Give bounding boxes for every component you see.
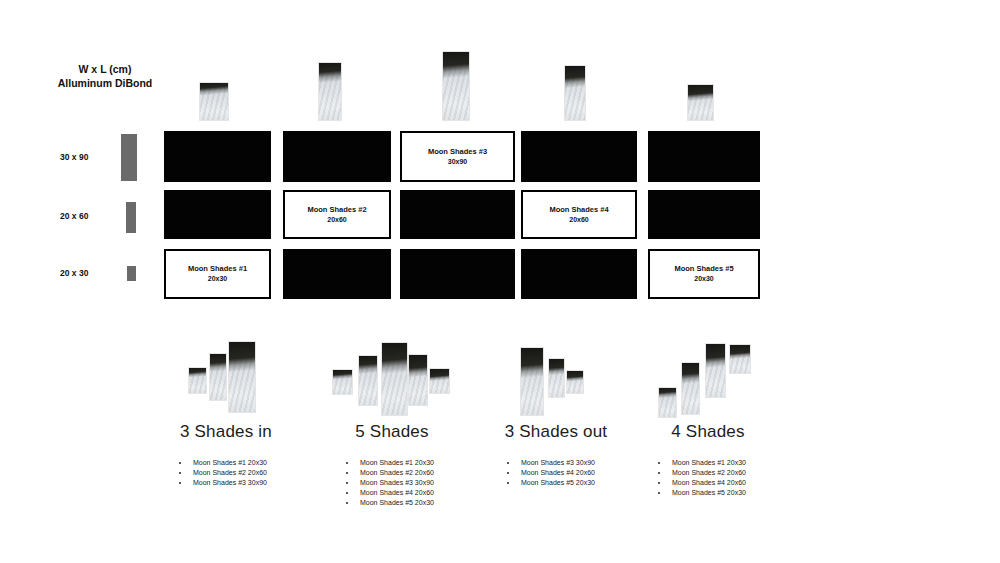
size-header: W x L (cm) Alluminum DiBond	[38, 63, 172, 90]
panel-size: 20x30	[694, 275, 713, 283]
list-item: Moon Shades #2 20x60	[190, 468, 267, 478]
size-reference-bar-20x60	[126, 202, 136, 233]
panel-size: 20x30	[208, 275, 227, 283]
panel-label-moon-shades-1: Moon Shades #1 20x30	[164, 249, 271, 299]
group-title-3-shades-in: 3 Shades in	[156, 422, 296, 442]
list-item: Moon Shades #1 20x30	[190, 458, 267, 468]
size-label-20x60: 20 x 60	[60, 211, 88, 221]
panel-size: 20x60	[569, 216, 588, 224]
moon-shade-photo-group4-3	[706, 344, 725, 397]
moon-shade-photo-group4-1	[659, 388, 676, 417]
panel-label-moon-shades-2: Moon Shades #2 20x60	[283, 190, 391, 239]
moon-shade-photo-group3-2	[549, 359, 564, 397]
size-label-30x90: 30 x 90	[60, 152, 88, 162]
moon-shade-photo-group3-3	[567, 371, 583, 393]
moon-shade-photo-group2-5	[430, 369, 449, 393]
panel-label-moon-shades-4: Moon Shades #4 20x60	[521, 190, 637, 239]
list-item: Moon Shades #4 20x60	[518, 468, 595, 478]
panel-black	[648, 190, 760, 239]
group-list-5-shades: Moon Shades #1 20x30 Moon Shades #2 20x6…	[345, 458, 434, 508]
panel-black	[648, 131, 760, 182]
panel-title: Moon Shades #3	[428, 148, 487, 156]
list-item: Moon Shades #2 20x60	[357, 468, 434, 478]
group-title-5-shades: 5 Shades	[322, 422, 462, 442]
moon-shade-photo-group1-2	[210, 354, 226, 400]
list-item: Moon Shades #3 30x90	[190, 478, 267, 488]
moon-shade-photo-group4-4	[730, 345, 750, 373]
panel-label-moon-shades-5: Moon Shades #5 20x30	[648, 249, 760, 299]
moon-shades-size-sheet: W x L (cm) Alluminum DiBond 30 x 90 20 x…	[0, 0, 1000, 563]
size-header-units: W x L (cm)	[38, 63, 172, 77]
list-item: Moon Shades #1 20x30	[357, 458, 434, 468]
panel-label-moon-shades-3: Moon Shades #3 30x90	[400, 131, 515, 182]
moon-shade-photo-group1-3	[229, 342, 255, 412]
moon-shade-photo-top-4	[565, 66, 585, 120]
size-label-20x30: 20 x 30	[60, 268, 88, 278]
group-title-3-shades-out: 3 Shades out	[486, 422, 626, 442]
panel-black	[283, 249, 391, 299]
panel-black	[521, 249, 637, 299]
panel-title: Moon Shades #1	[188, 265, 247, 273]
panel-black	[164, 131, 271, 182]
moon-shade-photo-top-2	[319, 63, 341, 120]
group-list-3-shades-out: Moon Shades #3 30x90 Moon Shades #4 20x6…	[506, 458, 595, 488]
list-item: Moon Shades #3 30x90	[357, 478, 434, 488]
panel-size: 30x90	[448, 158, 467, 166]
moon-shade-photo-group2-1	[333, 370, 352, 394]
panel-black	[283, 131, 391, 182]
group-list-4-shades: Moon Shades #1 20x30 Moon Shades #2 20x6…	[657, 458, 746, 498]
moon-shade-photo-group2-2	[359, 356, 377, 405]
list-item: Moon Shades #5 20x30	[518, 478, 595, 488]
list-item: Moon Shades #4 20x60	[669, 478, 746, 488]
moon-shade-photo-top-1	[200, 83, 228, 120]
size-header-material: Alluminum DiBond	[38, 77, 172, 91]
list-item: Moon Shades #3 30x90	[518, 458, 595, 468]
group-list-3-shades-in: Moon Shades #1 20x30 Moon Shades #2 20x6…	[178, 458, 267, 488]
moon-shade-photo-group1-1	[189, 368, 206, 393]
list-item: Moon Shades #1 20x30	[669, 458, 746, 468]
panel-title: Moon Shades #2	[307, 206, 366, 214]
moon-shade-photo-top-5	[688, 85, 713, 120]
moon-shade-photo-group4-2	[682, 363, 699, 414]
moon-shade-photo-top-3	[443, 52, 469, 120]
panel-black	[400, 190, 515, 239]
panel-title: Moon Shades #4	[549, 206, 608, 214]
panel-black	[164, 190, 271, 239]
moon-shade-photo-group3-1	[521, 348, 543, 415]
panel-title: Moon Shades #5	[674, 265, 733, 273]
size-reference-bar-30x90	[121, 134, 137, 181]
group-title-4-shades: 4 Shades	[638, 422, 778, 442]
size-reference-bar-20x30	[127, 266, 136, 281]
list-item: Moon Shades #2 20x60	[669, 468, 746, 478]
moon-shade-photo-group2-4	[409, 355, 427, 405]
panel-black	[521, 131, 637, 182]
panel-size: 20x60	[327, 216, 346, 224]
list-item: Moon Shades #5 20x30	[357, 498, 434, 508]
list-item: Moon Shades #4 20x60	[357, 488, 434, 498]
list-item: Moon Shades #5 20x30	[669, 488, 746, 498]
moon-shade-photo-group2-3	[382, 343, 407, 415]
panel-black	[400, 249, 515, 299]
